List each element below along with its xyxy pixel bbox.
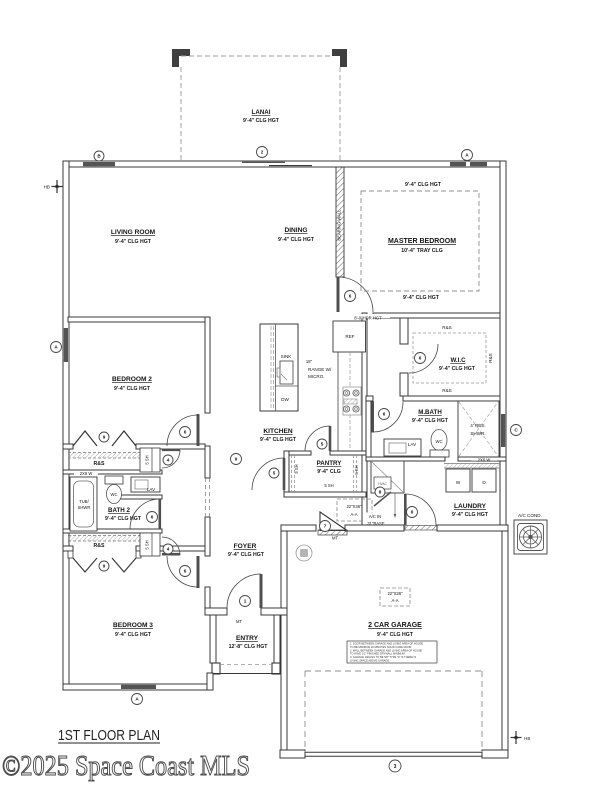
svg-text:W.I.C: W.I.C	[450, 357, 466, 364]
svg-text:2: 2	[261, 150, 264, 155]
svg-text:LAV: LAV	[147, 487, 156, 492]
svg-text:RANGE W/: RANGE W/	[308, 367, 332, 372]
svg-text:5 SH: 5 SH	[324, 483, 333, 488]
svg-text:R&S: R&S	[94, 461, 105, 467]
svg-text:WC: WC	[436, 439, 443, 444]
svg-text:LIVING SPACE ABOVE GARAGE: LIVING SPACE ABOVE GARAGE	[350, 659, 389, 663]
svg-text:5 SH: 5 SH	[145, 455, 150, 464]
svg-text:18": 18"	[306, 359, 313, 364]
svg-text:KITCHEN: KITCHEN	[263, 428, 293, 435]
svg-text:REF: REF	[345, 334, 354, 339]
svg-text:HB: HB	[44, 185, 50, 190]
svg-text:6: 6	[184, 569, 187, 574]
svg-text:TO BE MINIMUM 20 MINUTES SOLID: TO BE MINIMUM 20 MINUTES SOLID CORE DOOR	[350, 645, 411, 649]
svg-text:5: 5	[321, 442, 324, 447]
svg-text:5 SH: 5 SH	[294, 464, 299, 473]
svg-text:MASTER BEDROOM: MASTER BEDROOM	[388, 238, 456, 245]
svg-text:2X6 W: 2X6 W	[478, 458, 491, 463]
svg-text:BEDROOM 3: BEDROOM 3	[113, 622, 153, 629]
svg-text:9'-4" CLG HGT: 9'-4" CLG HGT	[377, 632, 414, 638]
svg-text:9'-4" CLG HGT: 9'-4" CLG HGT	[439, 366, 476, 372]
svg-text:BEARING WALL: BEARING WALL	[337, 209, 342, 241]
svg-text:4: 4	[167, 547, 170, 552]
svg-text:SINK: SINK	[281, 354, 293, 359]
svg-text:9'-4" CLG HGT: 9'-4" CLG HGT	[114, 386, 151, 392]
svg-text:R&S: R&S	[94, 543, 105, 549]
svg-text:LAUNDRY: LAUNDRY	[454, 503, 487, 510]
svg-text:A-A: A-A	[392, 598, 399, 603]
svg-text:4: 4	[167, 458, 170, 463]
svg-text:ENTRY: ENTRY	[236, 635, 259, 642]
svg-text:9'-4" CLG HGT: 9'-4" CLG HGT	[115, 632, 152, 638]
svg-text:8: 8	[379, 490, 382, 495]
svg-text:9'-4" CLG HGT: 9'-4" CLG HGT	[243, 118, 280, 124]
svg-text:MT: MT	[332, 536, 338, 541]
svg-text:2X8 W: 2X8 W	[80, 471, 93, 476]
svg-text:9'-4" CLG HGT: 9'-4" CLG HGT	[403, 295, 440, 301]
svg-text:TUB/: TUB/	[79, 499, 89, 504]
svg-text:LANAI: LANAI	[252, 109, 271, 116]
svg-text:5 SH: 5 SH	[145, 540, 150, 549]
svg-text:5 SH: 5 SH	[354, 465, 359, 474]
svg-text:3: 3	[394, 764, 397, 770]
svg-text:7: 7	[324, 524, 327, 529]
svg-text:MICRO.: MICRO.	[308, 374, 325, 379]
svg-text:4' RES.: 4' RES.	[470, 423, 485, 428]
svg-text:22"X36": 22"X36"	[346, 504, 362, 509]
svg-text:TO HAVE 1/2" FINISHED DRYWALL: TO HAVE 1/2" FINISHED DRYWALL MINIMUM	[350, 652, 405, 656]
svg-text:9'-4" CLG: 9'-4" CLG	[317, 469, 341, 475]
svg-text:6: 6	[151, 515, 154, 520]
svg-text:9'-4" CLG HGT: 9'-4" CLG HGT	[412, 418, 449, 424]
svg-text:©2025 Space Coast MLS: ©2025 Space Coast MLS	[2, 751, 250, 782]
svg-text:HVAC: HVAC	[378, 482, 387, 486]
svg-text:22"X36": 22"X36"	[387, 591, 403, 596]
svg-text:FOYER: FOYER	[234, 543, 257, 550]
svg-text:6: 6	[419, 356, 422, 361]
svg-text:SHWR: SHWR	[78, 505, 91, 510]
svg-text:1ST FLOOR PLAN: 1ST FLOOR PLAN	[58, 727, 160, 744]
svg-text:R&S: R&S	[442, 388, 451, 393]
svg-text:10'-4" TRAY CLG: 10'-4" TRAY CLG	[401, 248, 442, 254]
svg-text:R&S: R&S	[488, 353, 493, 362]
svg-text:3. GARAGE CEILING TO BE 5/8" T: 3. GARAGE CEILING TO BE 5/8" TYPE "X" IF…	[350, 655, 416, 659]
svg-text:A/C COND.: A/C COND.	[518, 513, 542, 518]
svg-text:6: 6	[349, 294, 352, 299]
svg-text:MT: MT	[236, 619, 242, 624]
svg-text:9'-4" CLG HGT: 9'-4" CLG HGT	[452, 512, 489, 518]
svg-text:9'-4" CLG HGT: 9'-4" CLG HGT	[260, 437, 297, 443]
svg-text:9'-4" CLG HGT: 9'-4" CLG HGT	[115, 239, 152, 245]
svg-text:W: W	[456, 480, 461, 485]
svg-text:A-A: A-A	[351, 512, 358, 517]
svg-text:R&S: R&S	[442, 325, 451, 330]
svg-text:6: 6	[184, 430, 187, 435]
svg-text:8'-0"HDR HGT: 8'-0"HDR HGT	[354, 316, 382, 321]
svg-text:6: 6	[383, 412, 386, 417]
svg-text:M.BATH: M.BATH	[418, 409, 442, 416]
svg-text:DW: DW	[281, 397, 289, 402]
svg-text:1: 1	[244, 599, 247, 604]
svg-text:PANTRY: PANTRY	[317, 460, 343, 467]
svg-text:9'-4" CLG HGT: 9'-4" CLG HGT	[405, 182, 442, 188]
svg-text:LIVING ROOM: LIVING ROOM	[111, 229, 156, 236]
svg-text:12'-8" CLG HGT: 12'-8" CLG HGT	[229, 644, 269, 650]
svg-text:BATH 2: BATH 2	[108, 507, 130, 514]
svg-text:2. WALL BETWEEN GARAGE AND LIV: 2. WALL BETWEEN GARAGE AND LIVING AREA O…	[350, 648, 422, 652]
svg-text:DINING: DINING	[284, 227, 307, 234]
svg-text:9'-4" CLG HGT: 9'-4" CLG HGT	[278, 237, 315, 243]
svg-text:2 CAR GARAGE: 2 CAR GARAGE	[368, 622, 422, 629]
svg-text:LAV: LAV	[408, 442, 417, 447]
svg-text:HB: HB	[524, 736, 530, 741]
svg-text:WC: WC	[111, 492, 118, 497]
svg-text:1. DOOR BETWEEN GARAGE AND LIV: 1. DOOR BETWEEN GARAGE AND LIVING AREA O…	[350, 642, 423, 646]
svg-text:6: 6	[411, 510, 414, 515]
svg-text:9'-4" CLG HGT: 9'-4" CLG HGT	[228, 552, 265, 558]
svg-text:A/C IN: A/C IN	[369, 514, 381, 519]
svg-text:9: 9	[103, 564, 106, 569]
svg-text:5: 5	[273, 471, 276, 476]
svg-text:BEDROOM 2: BEDROOM 2	[112, 376, 152, 383]
svg-text:SHWR.: SHWR.	[470, 431, 485, 436]
svg-text:9: 9	[103, 435, 106, 440]
svg-text:9: 9	[235, 457, 238, 462]
svg-text:9'-4" CLG HGT: 9'-4" CLG HGT	[105, 516, 142, 522]
